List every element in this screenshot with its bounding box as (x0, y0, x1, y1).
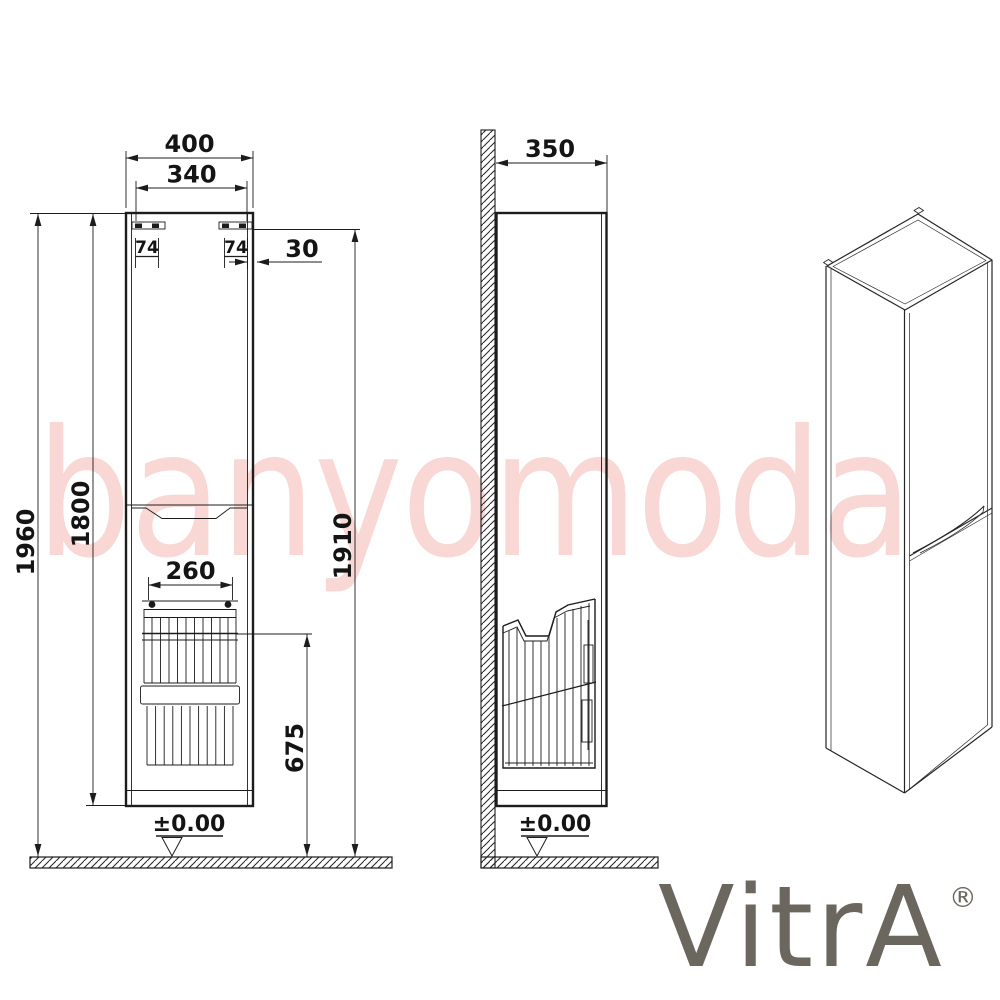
svg-text:340: 340 (166, 161, 216, 189)
registered-trademark-icon: ® (949, 884, 977, 912)
side-view: 350 ±0.00 (481, 130, 658, 868)
front-ground-hatch (30, 857, 392, 868)
svg-text:260: 260 (165, 557, 215, 585)
front-view: 400 340 74 74 (12, 130, 392, 868)
svg-text:±0.00: ±0.00 (519, 812, 592, 837)
svg-text:400: 400 (164, 130, 214, 158)
svg-text:1800: 1800 (67, 481, 95, 548)
svg-text:±0.00: ±0.00 (153, 812, 226, 837)
front-cabinet-outline (126, 213, 253, 806)
dim-side-depth: 350 (496, 135, 607, 212)
technical-drawing-page: banyomoda (0, 0, 1000, 1000)
perspective-view (824, 208, 993, 794)
side-ground-hatch (481, 857, 658, 868)
svg-text:74: 74 (135, 238, 159, 258)
svg-text:74: 74 (224, 238, 248, 258)
cabinet-technical-drawing: 400 340 74 74 (0, 0, 1000, 1000)
svg-text:350: 350 (525, 135, 575, 163)
brand-logo: VitrA ® (658, 872, 977, 984)
side-cabinet-outline (497, 213, 607, 806)
svg-text:1960: 1960 (12, 509, 40, 576)
front-door-handle-groove (127, 505, 252, 519)
dim-front-bracket-left: 74 (135, 238, 159, 268)
front-wire-basket (141, 601, 240, 765)
dim-front-height-body: 1800 (67, 214, 126, 807)
side-floor-datum: ±0.00 (519, 812, 592, 856)
svg-text:1910: 1910 (329, 513, 357, 580)
svg-text:30: 30 (285, 235, 318, 263)
front-floor-datum: ±0.00 (153, 812, 226, 856)
front-hanging-bracket-left (132, 222, 165, 229)
svg-text:675: 675 (281, 723, 309, 773)
brand-logo-text: VitrA (658, 872, 945, 984)
side-wall-hatch (481, 130, 495, 868)
perspective-handle-recess (910, 506, 993, 561)
side-wire-basket (502, 599, 596, 768)
dim-front-basket-width: 260 (149, 557, 233, 600)
